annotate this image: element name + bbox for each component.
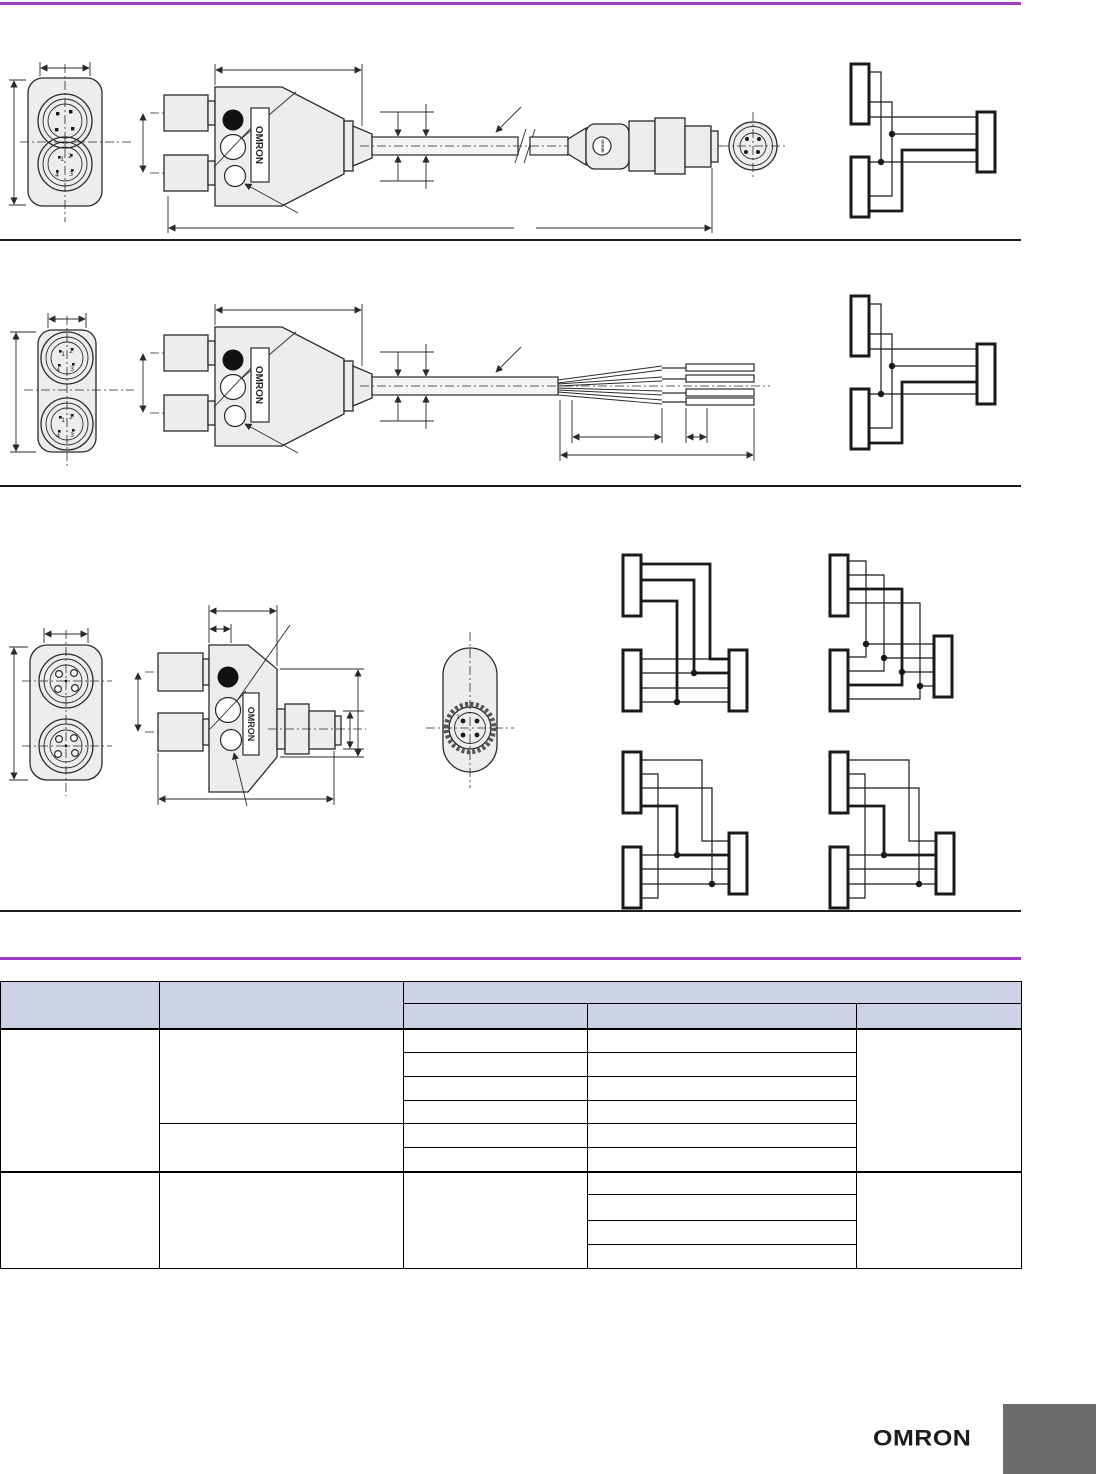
table-header-group: [404, 982, 1022, 1004]
table-cell: [588, 1221, 857, 1245]
fig3-wiring-diagram-4: [830, 752, 954, 908]
fig3-wiring-diagram-1: [623, 555, 747, 711]
section-divider-1: [0, 239, 1021, 241]
table-cell: [160, 1172, 404, 1269]
fig2-wiring-diagram: [851, 296, 995, 449]
fig2-side-view: OMRON: [143, 304, 770, 461]
fig1-pin-2: 2: [68, 152, 72, 160]
table-cell: [588, 1172, 857, 1195]
table-cell: [404, 1148, 588, 1172]
spec-table: [0, 981, 1022, 1269]
fig2-l-pin-3: 3: [70, 431, 74, 439]
table-cell: [588, 1195, 857, 1221]
table-header-col2: [160, 982, 404, 1029]
fig2-l-pin-4: 4: [56, 432, 60, 440]
fig1-connector-emblem: omron: [600, 139, 605, 152]
table-cell: [404, 1077, 588, 1101]
table-cell: [588, 1077, 857, 1101]
omron-logo: OMRON: [873, 1426, 973, 1449]
table-header-col1: [1, 982, 160, 1029]
fig3-device-label: OMRON: [246, 707, 256, 742]
table-cell: [588, 1148, 857, 1172]
fig3-wiring-diagram-3: [623, 752, 747, 908]
table-header-sub2: [588, 1004, 857, 1029]
table-header-sub3: [857, 1004, 1022, 1029]
fig1-pin-4: 4: [55, 171, 59, 179]
fig2-device-label: OMRON: [253, 366, 264, 404]
table-cell: [857, 1172, 1022, 1269]
section-divider-2: [0, 485, 1021, 487]
fig3-end-view: [9, 628, 112, 796]
table-cell: [588, 1101, 857, 1124]
table-accent-line: [0, 957, 1021, 960]
fig2-l-pin-1: 1: [61, 416, 65, 424]
fig3-face-pin-1: 1: [456, 713, 460, 721]
fig2-l-pin-2: 2: [69, 413, 73, 421]
table-header-sub1: [404, 1004, 588, 1029]
fig1-wiring-diagram: [851, 64, 995, 217]
fig3-face-view: 1: [426, 632, 514, 788]
table-cell: [404, 1172, 588, 1269]
page-corner-tab: [1003, 1404, 1096, 1474]
table-cell: [588, 1245, 857, 1269]
fig1-side-view: OMRON omron: [143, 64, 722, 233]
table-cell: [588, 1124, 857, 1148]
table-cell: [588, 1029, 857, 1053]
fig1-pin-1: 1: [60, 155, 64, 163]
fig2-end-view: 1 2 3 4 1 2 3 4: [10, 313, 134, 466]
table-cell: [588, 1053, 857, 1077]
fig3-side-view: OMRON: [138, 605, 366, 806]
fig2-u-pin-1: 1: [61, 350, 65, 358]
table-cell: [1, 1029, 160, 1172]
table-cell: [404, 1053, 588, 1077]
table-cell: [404, 1124, 588, 1148]
fig1-pin-3: 3: [69, 170, 73, 178]
fig2-u-pin-3: 3: [70, 365, 74, 373]
figure-1-y-joint-with-cable-connector: 1 2 3 4: [0, 48, 1021, 238]
table-cell: [1, 1172, 160, 1269]
fig2-u-pin-2: 2: [69, 347, 73, 355]
fig1-device-label: OMRON: [253, 126, 264, 164]
figure-3-y-joint-plug: OMRON: [0, 540, 1021, 912]
table-cell: [404, 1101, 588, 1124]
table-cell: [160, 1124, 404, 1172]
datasheet-page: 1 2 3 4: [0, 0, 1105, 1474]
table-cell: [857, 1029, 1022, 1172]
section-divider-3: [0, 910, 1021, 912]
table-cell: [160, 1029, 404, 1124]
top-accent-line: [0, 2, 1021, 5]
fig3-wiring-diagram-2: [830, 555, 952, 711]
table-cell: [404, 1029, 588, 1053]
fig2-u-pin-4: 4: [56, 366, 60, 374]
fig1-end-view: 1 2 3 4: [9, 62, 132, 222]
figure-2-y-joint-with-loose-wires: 1 2 3 4 1 2 3 4: [0, 290, 1021, 475]
fig1-male-face-view: [720, 112, 786, 180]
